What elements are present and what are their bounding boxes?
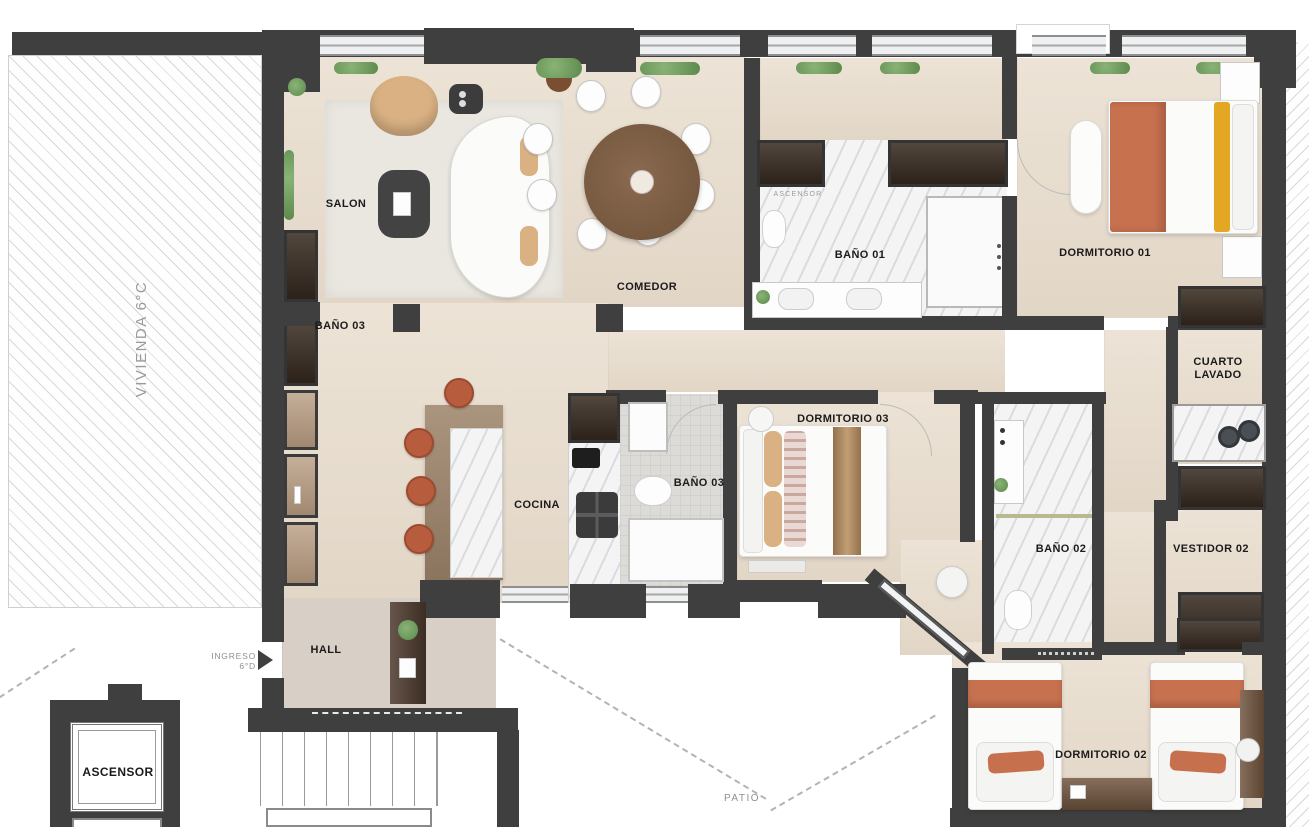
desk-chair [1236, 738, 1260, 762]
side-table [449, 84, 483, 114]
niche-decor [294, 486, 301, 504]
patio-cut-mask [733, 592, 925, 780]
kitchen-tall-cabinet [568, 393, 620, 443]
dining-table-centerpiece [630, 170, 654, 194]
wall-dorm01-west-a [1002, 55, 1017, 139]
wall-top-center-notch [586, 56, 636, 72]
window-salon [320, 35, 424, 56]
bed-cushion-tan [764, 431, 782, 487]
wall-bano01-west [744, 58, 760, 320]
window-south-2 [646, 586, 688, 603]
bed-blanket [1110, 102, 1166, 232]
kitchen-island-top [450, 428, 503, 578]
dormitorio01-label: DORMITORIO 01 [1038, 247, 1172, 260]
bed-cushion [1169, 750, 1226, 774]
entry-arrow-icon [258, 650, 273, 670]
hall-threshold [312, 712, 462, 714]
salon-label: SALON [316, 198, 376, 211]
lavado-closet [1178, 466, 1266, 510]
window-comedor [640, 35, 740, 56]
bed-runner [833, 427, 861, 555]
bed-cushion-tan [764, 491, 782, 547]
plant-icon [398, 620, 418, 640]
wall-bano02-north [975, 392, 1106, 404]
dorm01-wardrobe [1178, 286, 1266, 328]
adjacent-unit-label: VIVIENDA 6°C [133, 259, 149, 419]
wall-vestidor-west [1154, 500, 1166, 646]
plant-icon [288, 78, 306, 96]
floor-plan: VIVIENDA 6°C [0, 0, 1309, 827]
window-passage-2 [872, 35, 992, 56]
wall-bano02-east [1092, 398, 1104, 654]
cooktop [576, 492, 618, 538]
bed-pillows [1232, 104, 1254, 230]
wall-dorm01-south-a [1002, 316, 1104, 330]
cuarto-lavado-label: CUARTO LAVADO [1184, 356, 1252, 382]
elevator-shaft-label: ASCENSOR [768, 191, 828, 198]
dormitorio03-label: DORMITORIO 03 [776, 413, 910, 426]
threshold-dots [1038, 652, 1094, 655]
bano01-sink [778, 288, 814, 310]
cocina-label: COCINA [505, 499, 569, 512]
stair-landing [266, 808, 432, 827]
bano03-label: BAÑO 03 [666, 477, 732, 490]
east-corridor-floor2 [1104, 512, 1158, 642]
wall-dorm03-east [960, 396, 975, 542]
bar-stool [404, 428, 434, 458]
dormitorio02-label: DORMITORIO 02 [1034, 749, 1168, 762]
wall-dorm03-south [737, 580, 822, 602]
plant-icon [536, 58, 582, 78]
dining-chair [527, 179, 557, 211]
glass-partition [996, 514, 1092, 518]
elevator-car-2 [72, 818, 162, 827]
bed-pillows [743, 429, 763, 553]
plant-icon [796, 62, 842, 74]
plant-icon [880, 62, 920, 74]
corridor-niche-1 [284, 390, 318, 450]
corridor-niche-2 [284, 454, 318, 518]
wall-south-pier-1 [570, 584, 646, 618]
bano02-label: BAÑO 02 [1028, 543, 1094, 556]
faucet-dot [1000, 440, 1005, 445]
column [596, 304, 623, 332]
dresser-decor [1070, 785, 1086, 799]
bano01-shower [926, 196, 1008, 308]
dining-chair [523, 123, 553, 155]
bano01-wc [762, 210, 786, 248]
shower-controls [997, 266, 1001, 270]
wall-dorm02-north-a [1093, 642, 1185, 655]
plant-icon [1090, 62, 1130, 74]
dining-chair [576, 80, 606, 112]
wall-dorm02-west [952, 668, 968, 816]
corridor-niche-3 [284, 522, 318, 586]
wall-dorm02-south [950, 808, 1286, 827]
plant-icon [994, 478, 1008, 492]
salon-bookcase [284, 230, 318, 302]
patio-dash-left [500, 638, 767, 799]
wall-corridor-south-b [718, 390, 878, 404]
cuarto-lavado-line2: LAVADO [1194, 369, 1241, 381]
wall-hall-east-vert [497, 730, 519, 827]
bar-stool [444, 378, 474, 408]
window-dorm01-1 [1032, 35, 1106, 56]
coffee-machine [572, 448, 600, 468]
mid-corridor-floor [608, 330, 1005, 392]
sofa-cushion [520, 226, 538, 266]
adjacent-hatch-right [1286, 42, 1309, 827]
pouf [936, 566, 968, 598]
plant-icon [284, 150, 294, 220]
shower-controls [997, 255, 1001, 259]
side-table-decor [459, 91, 466, 98]
coffee-table-book [393, 192, 411, 216]
wall-hall-ne-pier [420, 580, 500, 618]
washer-icon [1218, 426, 1240, 448]
vestidor02-label: VESTIDOR 02 [1166, 543, 1256, 556]
bano03-upper-label: BAÑO 03 [305, 320, 375, 333]
bano01-label: BAÑO 01 [827, 249, 893, 262]
wall-dorm01-west-b [1002, 196, 1017, 316]
wall-hall-west-a [262, 604, 284, 642]
bed-bench [1070, 120, 1102, 214]
bano01-sink [846, 288, 882, 310]
hall-console [390, 602, 426, 704]
ingreso-label: INGRESO 6°D [204, 651, 256, 671]
staircase [260, 732, 438, 806]
dining-chair [631, 76, 661, 108]
outer-wall-top-left [12, 32, 262, 55]
hall-label: HALL [304, 644, 348, 657]
armchair [370, 76, 438, 136]
nightstand [1222, 236, 1262, 278]
console-decor [399, 658, 416, 678]
bano02-wc [1004, 590, 1032, 630]
patio-label: PATIO [712, 793, 772, 804]
wall-bano01-south [744, 316, 1018, 330]
window-south-1 [502, 586, 568, 603]
ingreso-line1: INGRESO [211, 651, 256, 661]
column [393, 304, 420, 332]
faucet-dot [1000, 428, 1005, 433]
bano03-shower [628, 402, 668, 452]
wall-dorm02-north-b [1242, 642, 1264, 655]
bed-blanket [1150, 680, 1244, 708]
bedroom-stool [748, 406, 774, 432]
wall-hall-west-b [262, 678, 284, 712]
ascensor-label: ASCENSOR [76, 766, 160, 779]
window-dorm01-2 [1122, 35, 1246, 56]
bar-stool [406, 476, 436, 506]
cuarto-lavado-line1: CUARTO [1193, 356, 1242, 368]
plant-icon [756, 290, 770, 304]
ingreso-line2: 6°D [239, 661, 256, 671]
bano01-closet-right [888, 140, 1008, 187]
bar-stool [404, 524, 434, 554]
bench-strip [748, 560, 806, 573]
wall-bano02-west [982, 398, 994, 654]
plant-icon [640, 62, 700, 75]
nightstand [1220, 62, 1260, 104]
plant-icon [334, 62, 378, 74]
window-passage-1 [768, 35, 856, 56]
bed-blanket [968, 680, 1062, 708]
comedor-label: COMEDOR [611, 281, 683, 294]
bed-cushion-floral [784, 431, 806, 547]
elevator-shaft-nub [108, 684, 142, 704]
bed-throw [1214, 102, 1230, 232]
bano01-closet-left [757, 140, 825, 187]
corner-dash [0, 648, 75, 699]
bano03-bath [628, 518, 724, 582]
wall-west [262, 57, 284, 606]
east-corridor-floor [1104, 330, 1166, 512]
side-table-decor [459, 100, 466, 107]
shower-controls [997, 244, 1001, 248]
wall-south-pier-2 [688, 584, 740, 618]
washer-icon [1238, 420, 1260, 442]
